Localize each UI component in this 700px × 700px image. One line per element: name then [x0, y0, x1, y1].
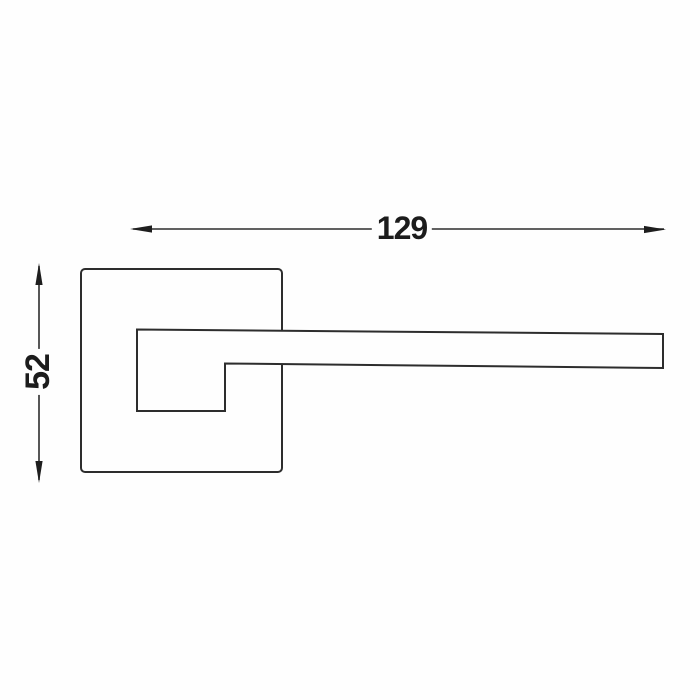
width-dimension-label: 129 [372, 211, 432, 245]
arrow-left-icon [130, 225, 152, 232]
door-handle-drawing [0, 0, 700, 700]
arrow-down-icon [35, 461, 42, 483]
technical-drawing-canvas: 129 52 [0, 0, 700, 700]
arrow-right-icon [644, 226, 666, 233]
arrow-up-icon [35, 263, 42, 285]
lever-handle-outline [137, 330, 663, 412]
height-dimension-label: 52 [20, 349, 56, 395]
